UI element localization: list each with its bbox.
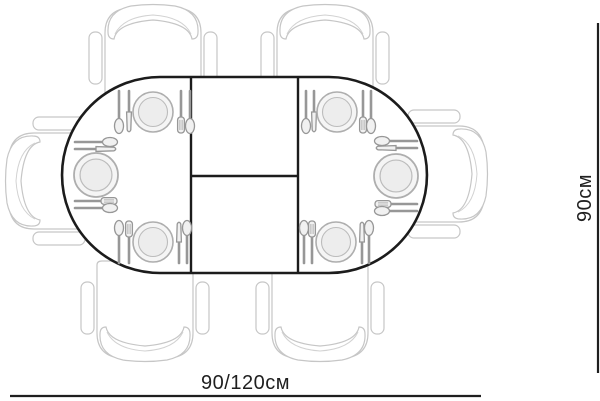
chair-bottom-left [81,261,209,362]
table-dimension-diagram: 90/120см 90см [0,0,600,401]
place-setting-left [74,138,118,213]
depth-dimension-label: 90см [574,176,596,222]
diagram-drawing [0,0,600,401]
place-setting-right [374,137,418,216]
width-dimension-label: 90/120см [10,372,481,395]
chair-bottom-right [256,261,384,362]
